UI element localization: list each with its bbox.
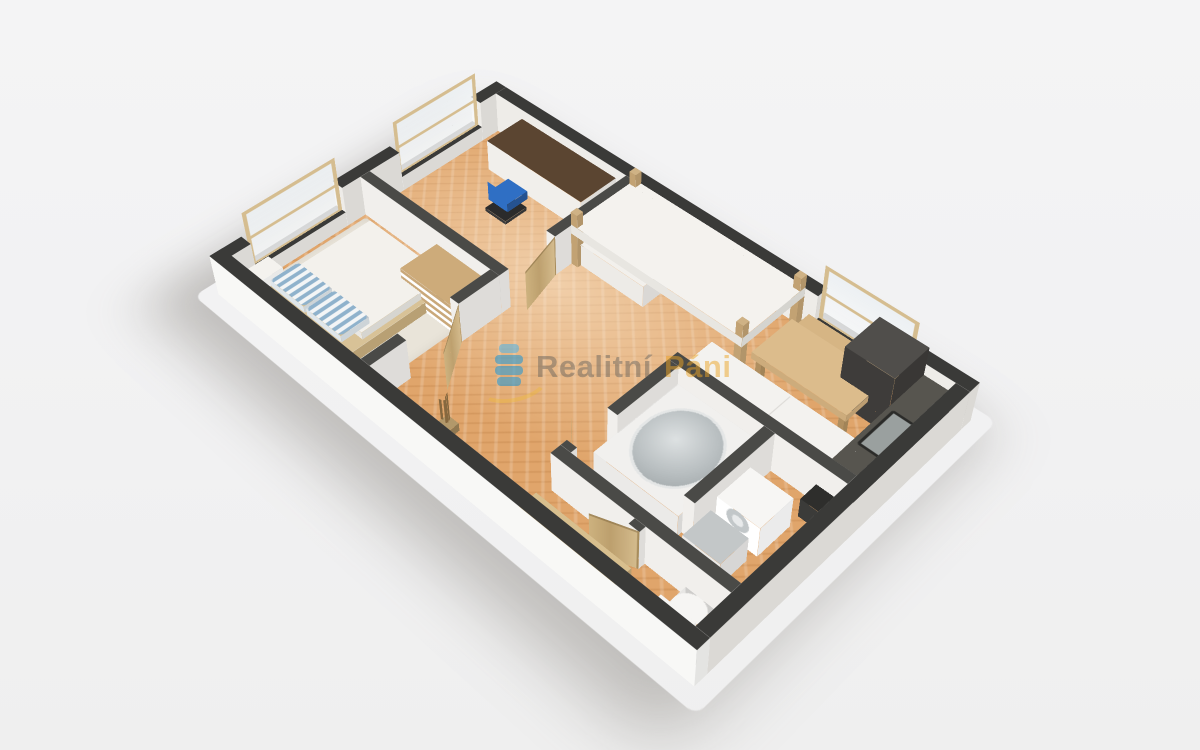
camera-viewport: [0, 0, 1200, 750]
floorplan-render-image: Realitní Páni: [0, 0, 1200, 750]
floorplan-3d-scene: [218, 119, 970, 687]
